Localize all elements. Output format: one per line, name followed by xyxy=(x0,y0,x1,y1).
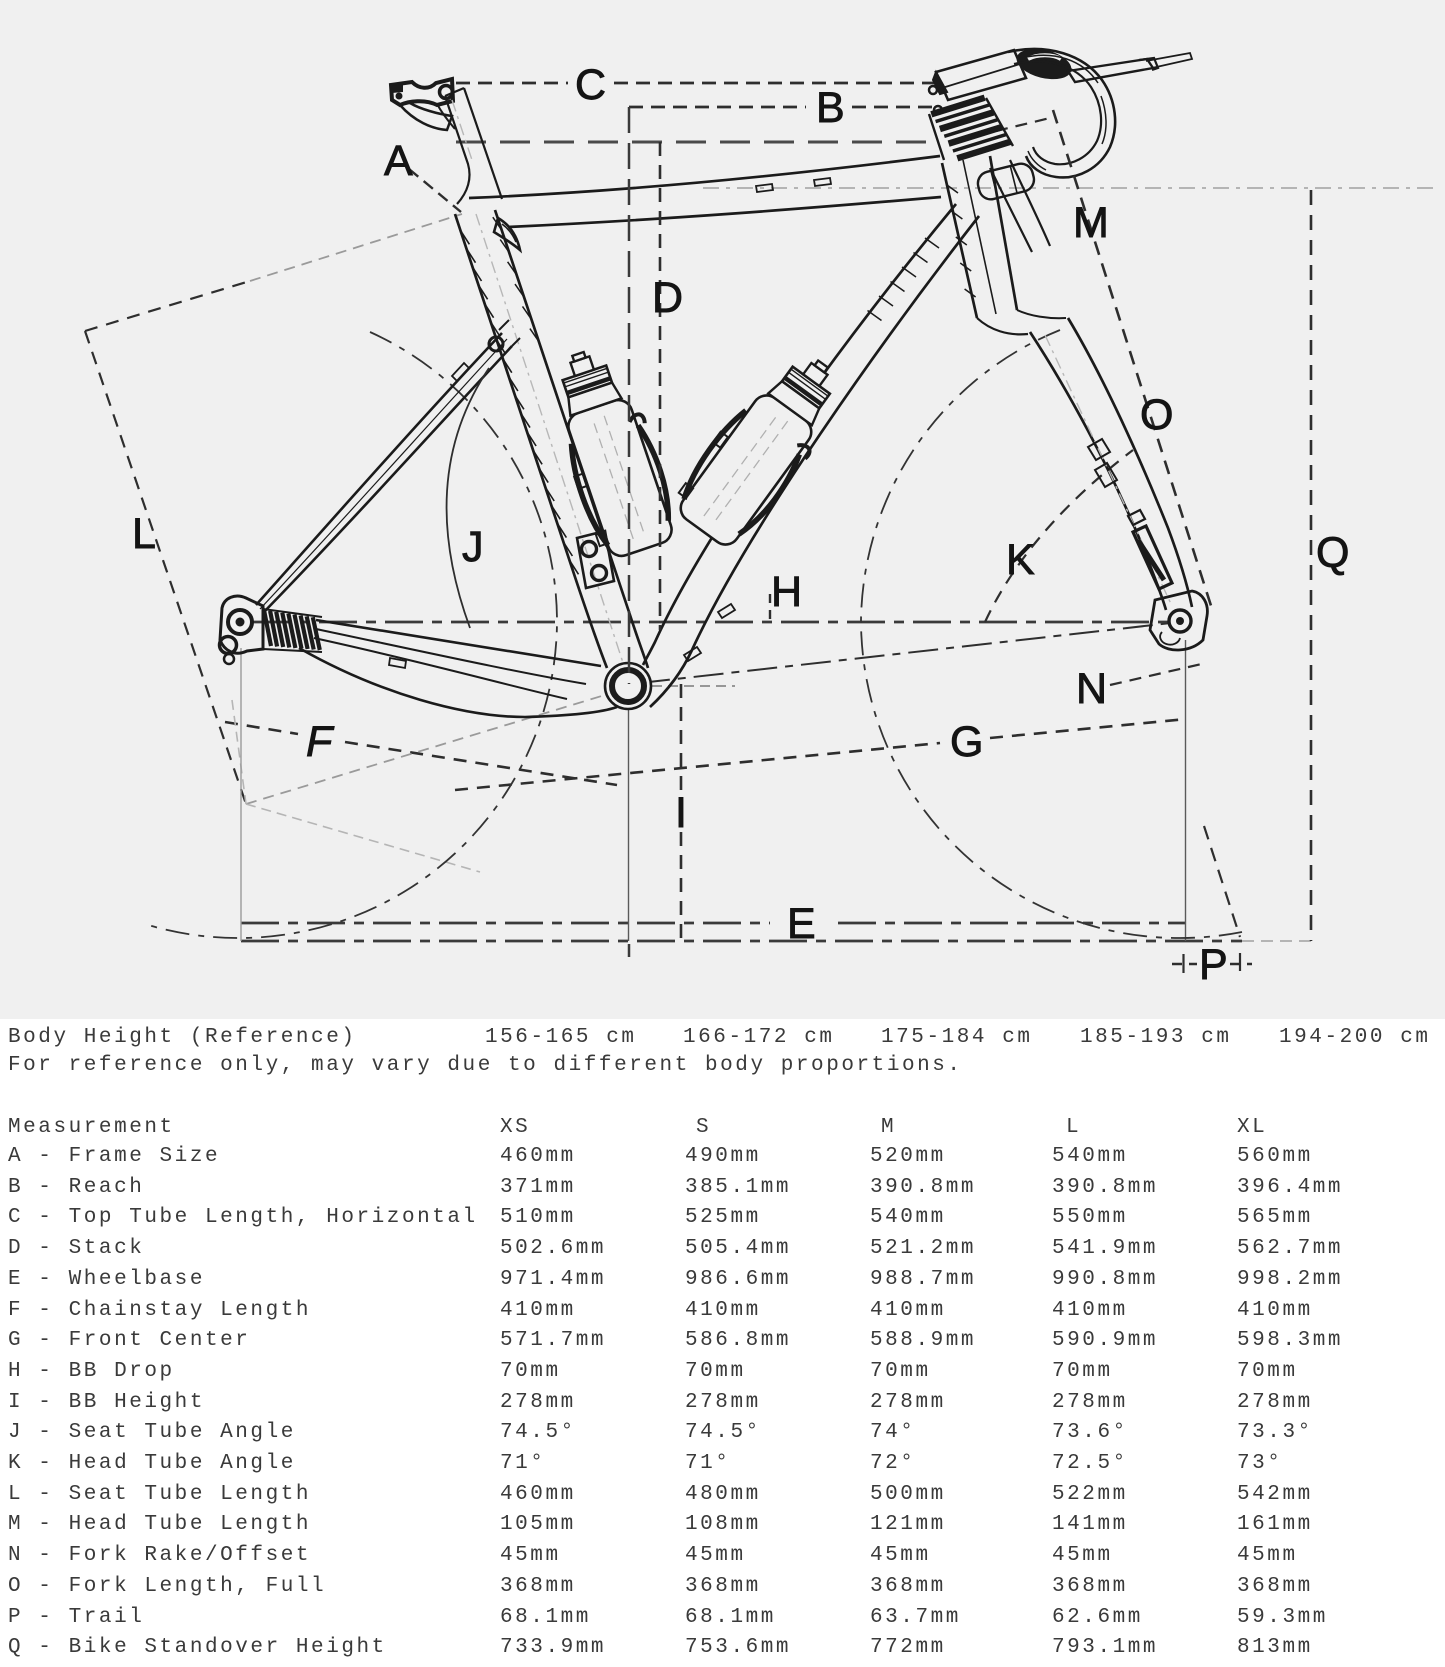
svg-text:B: B xyxy=(816,84,845,132)
svg-text:L: L xyxy=(132,510,156,558)
svg-text:O: O xyxy=(1140,391,1173,439)
svg-text:E: E xyxy=(787,900,816,948)
svg-text:K: K xyxy=(1006,536,1035,584)
svg-text:C: C xyxy=(575,61,606,109)
svg-text:F: F xyxy=(306,718,335,766)
svg-text:D: D xyxy=(652,274,683,322)
svg-text:I: I xyxy=(675,789,687,837)
svg-text:Q: Q xyxy=(1316,529,1349,577)
svg-text:A: A xyxy=(384,137,413,185)
svg-text:P: P xyxy=(1199,941,1228,989)
svg-text:M: M xyxy=(1073,199,1109,247)
svg-text:G: G xyxy=(950,718,983,766)
svg-text:N: N xyxy=(1076,665,1107,713)
svg-text:J: J xyxy=(462,523,484,571)
svg-text:H: H xyxy=(771,568,802,616)
